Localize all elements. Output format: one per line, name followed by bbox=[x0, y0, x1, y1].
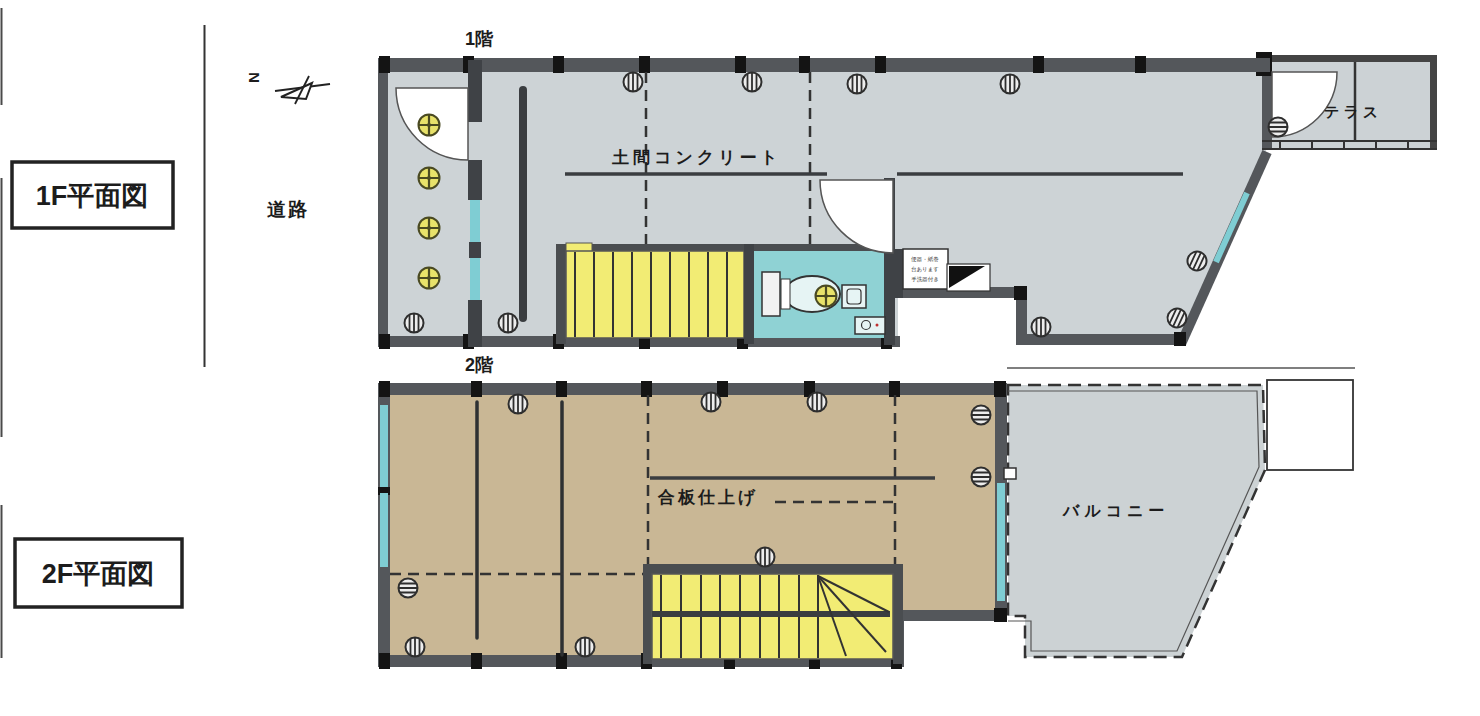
vent-icon bbox=[624, 73, 643, 92]
plan-2f: バルコニー bbox=[378, 368, 1355, 669]
vent-icon bbox=[499, 314, 518, 333]
toilet-tank bbox=[762, 272, 780, 316]
wall-segment bbox=[468, 160, 482, 200]
wall-fixture bbox=[1004, 468, 1016, 479]
partition-wall bbox=[519, 86, 527, 322]
toilet-seat bbox=[781, 279, 790, 309]
floor-tag-1f: 1階 bbox=[465, 29, 494, 49]
north-letter: N bbox=[245, 72, 262, 83]
wall-segment bbox=[1430, 55, 1437, 150]
vent-icon bbox=[808, 393, 827, 412]
balcony-label: バルコニー bbox=[1062, 502, 1170, 519]
roof-outline-below bbox=[1267, 380, 1353, 470]
wall-segment bbox=[1262, 55, 1437, 62]
label-2f-text: 2F平面図 bbox=[42, 559, 155, 589]
glass-panel bbox=[470, 258, 480, 300]
downlight-icon bbox=[816, 286, 837, 307]
surface-label-1f: 土間コンクリート bbox=[611, 148, 782, 167]
label-1f-text: 1F平面図 bbox=[36, 181, 149, 211]
floor-plan-drawing: 1F平面図 2F平面図 N 道路 1階 2階 bbox=[0, 0, 1480, 716]
balcony-floor bbox=[1008, 385, 1265, 657]
vent-icon bbox=[406, 638, 425, 657]
floor-tag-2f: 2階 bbox=[465, 355, 494, 375]
vent-icon bbox=[399, 579, 418, 598]
glass-panel bbox=[380, 493, 388, 567]
vent-icon bbox=[1269, 118, 1288, 137]
vestibule-wall bbox=[468, 60, 482, 347]
vent-icon bbox=[848, 75, 867, 94]
vent-icon bbox=[972, 406, 991, 425]
staircase-2f bbox=[643, 564, 903, 664]
road-label: 道路 bbox=[267, 199, 309, 220]
north-arrow: N bbox=[245, 72, 330, 104]
balcony: バルコニー bbox=[1007, 368, 1355, 657]
vent-icon bbox=[1032, 318, 1051, 337]
wall-segment bbox=[469, 242, 481, 258]
wall-segment bbox=[468, 60, 482, 122]
entry-step bbox=[947, 264, 990, 291]
vent-icon bbox=[405, 314, 424, 333]
glass-panel bbox=[997, 483, 1005, 601]
vent-icon bbox=[702, 393, 721, 412]
note-box: 便器・紙巻 台あります 手洗器付き bbox=[903, 249, 948, 289]
wall-segment bbox=[643, 564, 902, 574]
plan-1f: テラス bbox=[378, 52, 1437, 349]
vent-icon bbox=[756, 548, 775, 567]
glass-panel bbox=[380, 405, 388, 489]
wall-segment bbox=[468, 300, 482, 347]
note-line: 手洗器付き bbox=[911, 276, 939, 283]
vent-icon bbox=[743, 73, 762, 92]
wall-segment bbox=[378, 58, 388, 347]
surface-label-2f: 合板仕上げ bbox=[657, 488, 758, 507]
glass-panel bbox=[470, 200, 480, 242]
wall-segment bbox=[556, 244, 566, 344]
vent-icon bbox=[1001, 75, 1020, 94]
note-line: 便器・紙巻 bbox=[910, 256, 939, 263]
stair-flight bbox=[566, 251, 744, 338]
wall-segment bbox=[895, 249, 903, 298]
wall-segment bbox=[744, 244, 754, 344]
downlight-icon bbox=[419, 218, 440, 239]
wall-segment bbox=[643, 564, 652, 664]
wall-segment bbox=[893, 564, 903, 664]
downlight-icon bbox=[419, 115, 440, 136]
downlight-icon bbox=[419, 168, 440, 189]
wall-segment bbox=[893, 610, 1007, 621]
terrace-label: テラス bbox=[1324, 103, 1382, 120]
note-line: 台あります bbox=[911, 266, 939, 273]
vent-icon bbox=[576, 638, 595, 657]
vent-icon bbox=[509, 395, 528, 414]
label-box-2f: 2F平面図 bbox=[15, 539, 182, 607]
downlight-icon bbox=[419, 268, 440, 289]
water-heater-dot bbox=[876, 324, 879, 327]
label-box-1f: 1F平面図 bbox=[12, 162, 173, 228]
vent-icon bbox=[972, 468, 991, 487]
floor-plan-sheet: 1F平面図 2F平面図 N 道路 1階 2階 bbox=[0, 0, 1480, 716]
